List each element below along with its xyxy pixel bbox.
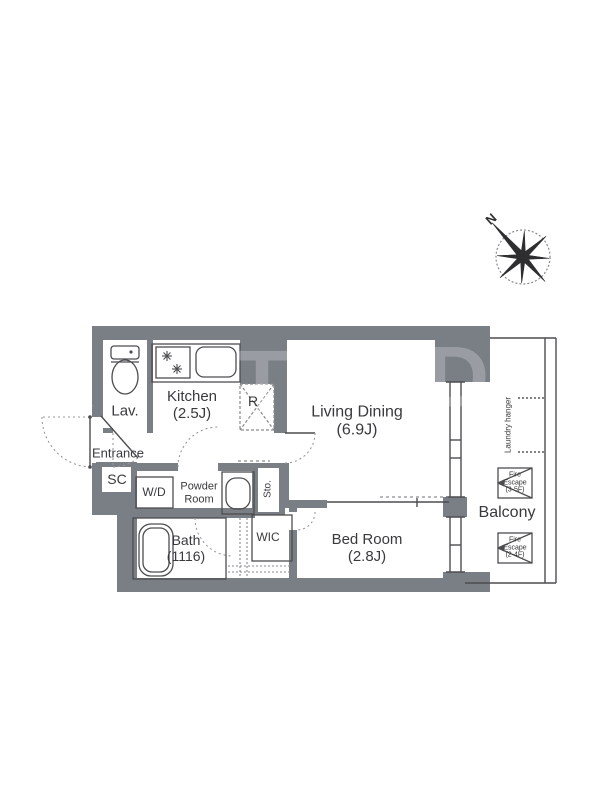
- bath-name: Bath: [167, 532, 205, 548]
- burner-icons: [162, 351, 182, 374]
- wic-hanger-marks: [228, 518, 290, 578]
- fire-lower-line3: (2-4F): [503, 552, 526, 560]
- kitchen-name: Kitchen: [167, 388, 217, 405]
- basin-icon: [226, 478, 250, 509]
- sink-icon: [196, 347, 236, 377]
- bedroom-size: (2.8J): [332, 548, 403, 565]
- powder-line2: Room: [180, 493, 217, 506]
- room-label-lav: Lav.: [111, 402, 138, 419]
- label-fire-escape-lower: Fire Escape (2-4F): [503, 536, 526, 559]
- fire-lower-line1: Fire: [503, 536, 526, 544]
- room-label-living-dining: Living Dining (6.9J): [311, 404, 403, 441]
- room-label-wic: WIC: [256, 531, 279, 545]
- fire-upper-line1: Fire: [503, 471, 526, 479]
- room-label-balcony: Balcony: [479, 504, 536, 522]
- compass-rose: [465, 198, 575, 309]
- toilet-tank-icon: [111, 346, 139, 359]
- watermark-letter: D: [427, 329, 489, 428]
- laundry-hanger-marks: [518, 398, 546, 452]
- room-label-kitchen: Kitchen (2.5J): [167, 388, 217, 423]
- label-fire-escape-upper: Fire Escape (3-5F): [503, 471, 526, 494]
- fire-upper-line2: Escape: [503, 479, 526, 487]
- toilet-bowl-icon: [112, 360, 138, 394]
- watermark-letter: R: [33, 329, 95, 428]
- room-label-entrance: Entrance: [92, 447, 144, 462]
- room-label-bedroom: Bed Room (2.8J): [332, 531, 403, 566]
- living-size: (6.9J): [311, 422, 403, 440]
- powder-line1: Powder: [180, 480, 217, 493]
- living-name: Living Dining: [311, 404, 403, 422]
- fire-upper-line3: (3-5F): [503, 487, 526, 495]
- stove-icon: [156, 347, 190, 378]
- label-laundry-hanger: Laundry hanger: [503, 397, 512, 453]
- room-label-storage: Sto.: [262, 480, 274, 498]
- room-label-refrigerator: R: [248, 393, 258, 409]
- bath-size: (1116): [167, 548, 205, 564]
- room-label-wd: W/D: [142, 486, 165, 500]
- room-label-bath: Bath (1116): [167, 532, 205, 564]
- fire-lower-line2: Escape: [503, 544, 526, 552]
- room-label-powder-room: Powder Room: [180, 480, 217, 505]
- bedroom-name: Bed Room: [332, 531, 403, 548]
- room-label-sc: SC: [107, 471, 126, 487]
- watermark-letter: T: [236, 333, 289, 432]
- floorplan-page: R T D N Lav. Kitchen (2.5J) R Living Din…: [0, 0, 600, 800]
- kitchen-size: (2.5J): [167, 405, 217, 422]
